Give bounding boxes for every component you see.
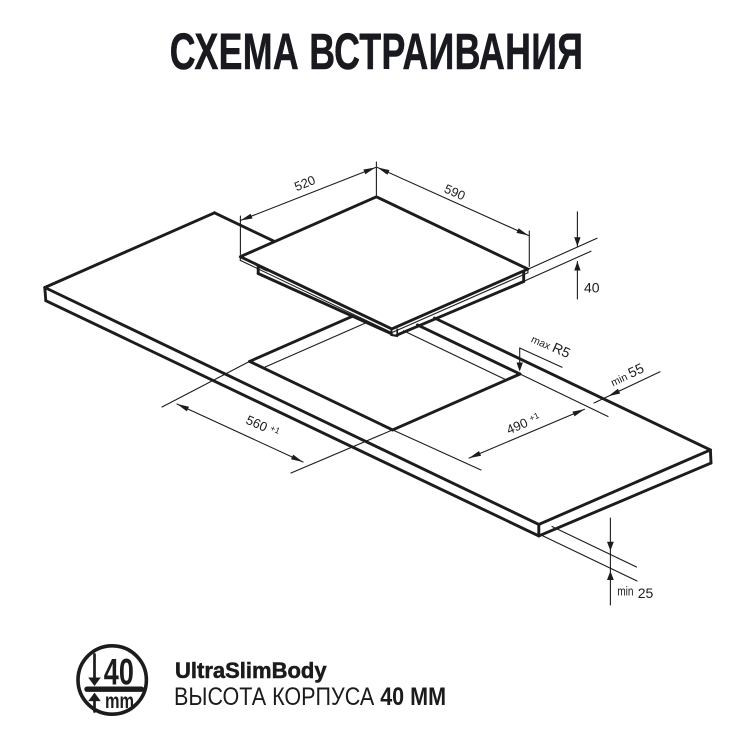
svg-text:mm: mm xyxy=(105,690,134,714)
svg-text:560 +1: 560 +1 xyxy=(244,412,282,440)
svg-text:min 55: min 55 xyxy=(607,360,646,390)
svg-text:520: 520 xyxy=(292,172,317,194)
svg-text:min: min xyxy=(617,584,633,598)
svg-text:590: 590 xyxy=(442,181,468,203)
svg-text:25: 25 xyxy=(638,585,654,601)
svg-text:max R5: max R5 xyxy=(529,330,573,361)
svg-text:40: 40 xyxy=(104,651,134,692)
svg-text:40: 40 xyxy=(584,280,600,296)
